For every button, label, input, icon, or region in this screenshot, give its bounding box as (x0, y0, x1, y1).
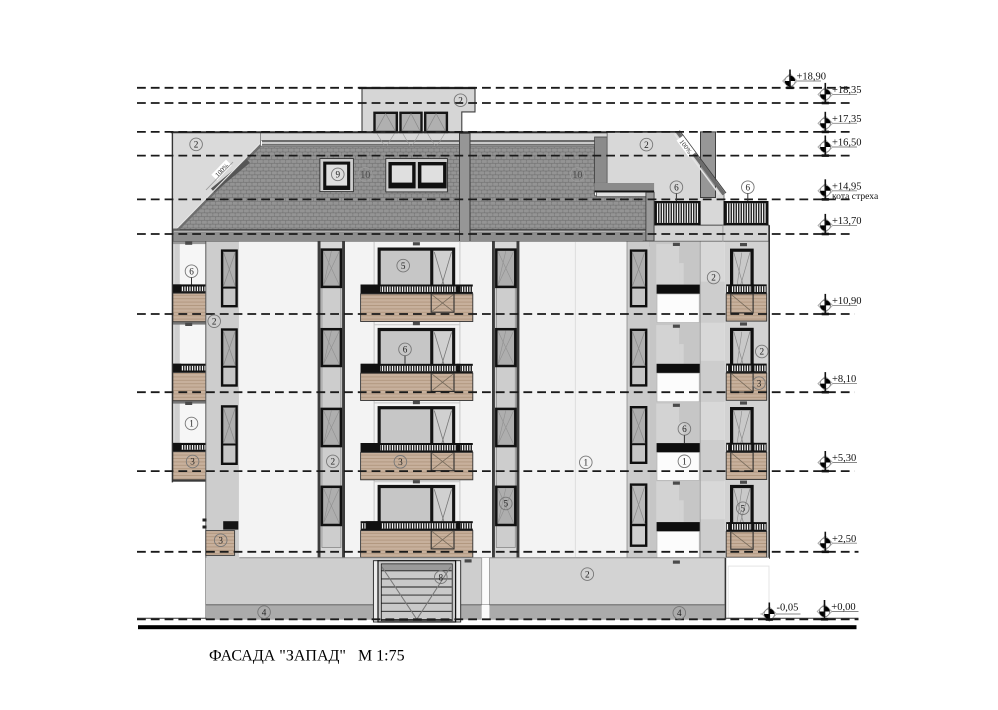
svg-text:+16,50: +16,50 (832, 138, 862, 149)
svg-text:2: 2 (212, 316, 217, 326)
svg-text:5: 5 (741, 503, 746, 513)
svg-text:+5,30: +5,30 (832, 453, 856, 464)
svg-text:+10,90: +10,90 (832, 296, 862, 307)
svg-text:+18,35: +18,35 (832, 85, 862, 96)
svg-text:+2,50: +2,50 (832, 534, 856, 545)
svg-text:3: 3 (757, 378, 762, 388)
svg-text:3: 3 (190, 457, 195, 467)
svg-text:6: 6 (746, 182, 751, 192)
svg-text:2: 2 (644, 140, 649, 150)
svg-text:3: 3 (398, 457, 403, 467)
svg-text:6: 6 (189, 266, 194, 276)
svg-text:3: 3 (218, 535, 223, 545)
svg-text:4: 4 (262, 607, 267, 617)
svg-text:10: 10 (572, 170, 582, 181)
svg-text:8: 8 (439, 572, 444, 582)
svg-text:-0,05: -0,05 (777, 602, 799, 613)
svg-text:1: 1 (189, 419, 194, 429)
svg-text:+17,35: +17,35 (832, 114, 862, 125)
svg-text:2: 2 (711, 273, 716, 283)
svg-text:1: 1 (584, 458, 589, 468)
svg-text:10: 10 (360, 170, 370, 181)
svg-text:6: 6 (403, 345, 408, 355)
svg-text:4: 4 (677, 608, 682, 618)
svg-text:+0,00: +0,00 (831, 602, 855, 613)
svg-text:+18,90: +18,90 (797, 72, 827, 83)
svg-text:+13,70: +13,70 (832, 216, 862, 227)
svg-text:2: 2 (331, 457, 336, 467)
svg-text:1: 1 (682, 457, 687, 467)
svg-text:9: 9 (336, 170, 341, 180)
svg-text:2: 2 (585, 569, 590, 579)
svg-text:5: 5 (504, 499, 509, 509)
svg-text:2: 2 (458, 95, 463, 105)
svg-text:ФАСАДА "ЗАПАД" М 1:75: ФАСАДА "ЗАПАД" М 1:75 (209, 648, 405, 665)
svg-text:6: 6 (682, 424, 687, 434)
svg-text:5: 5 (401, 261, 406, 271)
svg-text:2: 2 (760, 347, 765, 357)
svg-text:6: 6 (674, 182, 679, 192)
svg-text:+8,10: +8,10 (832, 374, 856, 385)
svg-text:кота стреха: кота стреха (832, 191, 879, 202)
svg-text:2: 2 (194, 140, 199, 150)
